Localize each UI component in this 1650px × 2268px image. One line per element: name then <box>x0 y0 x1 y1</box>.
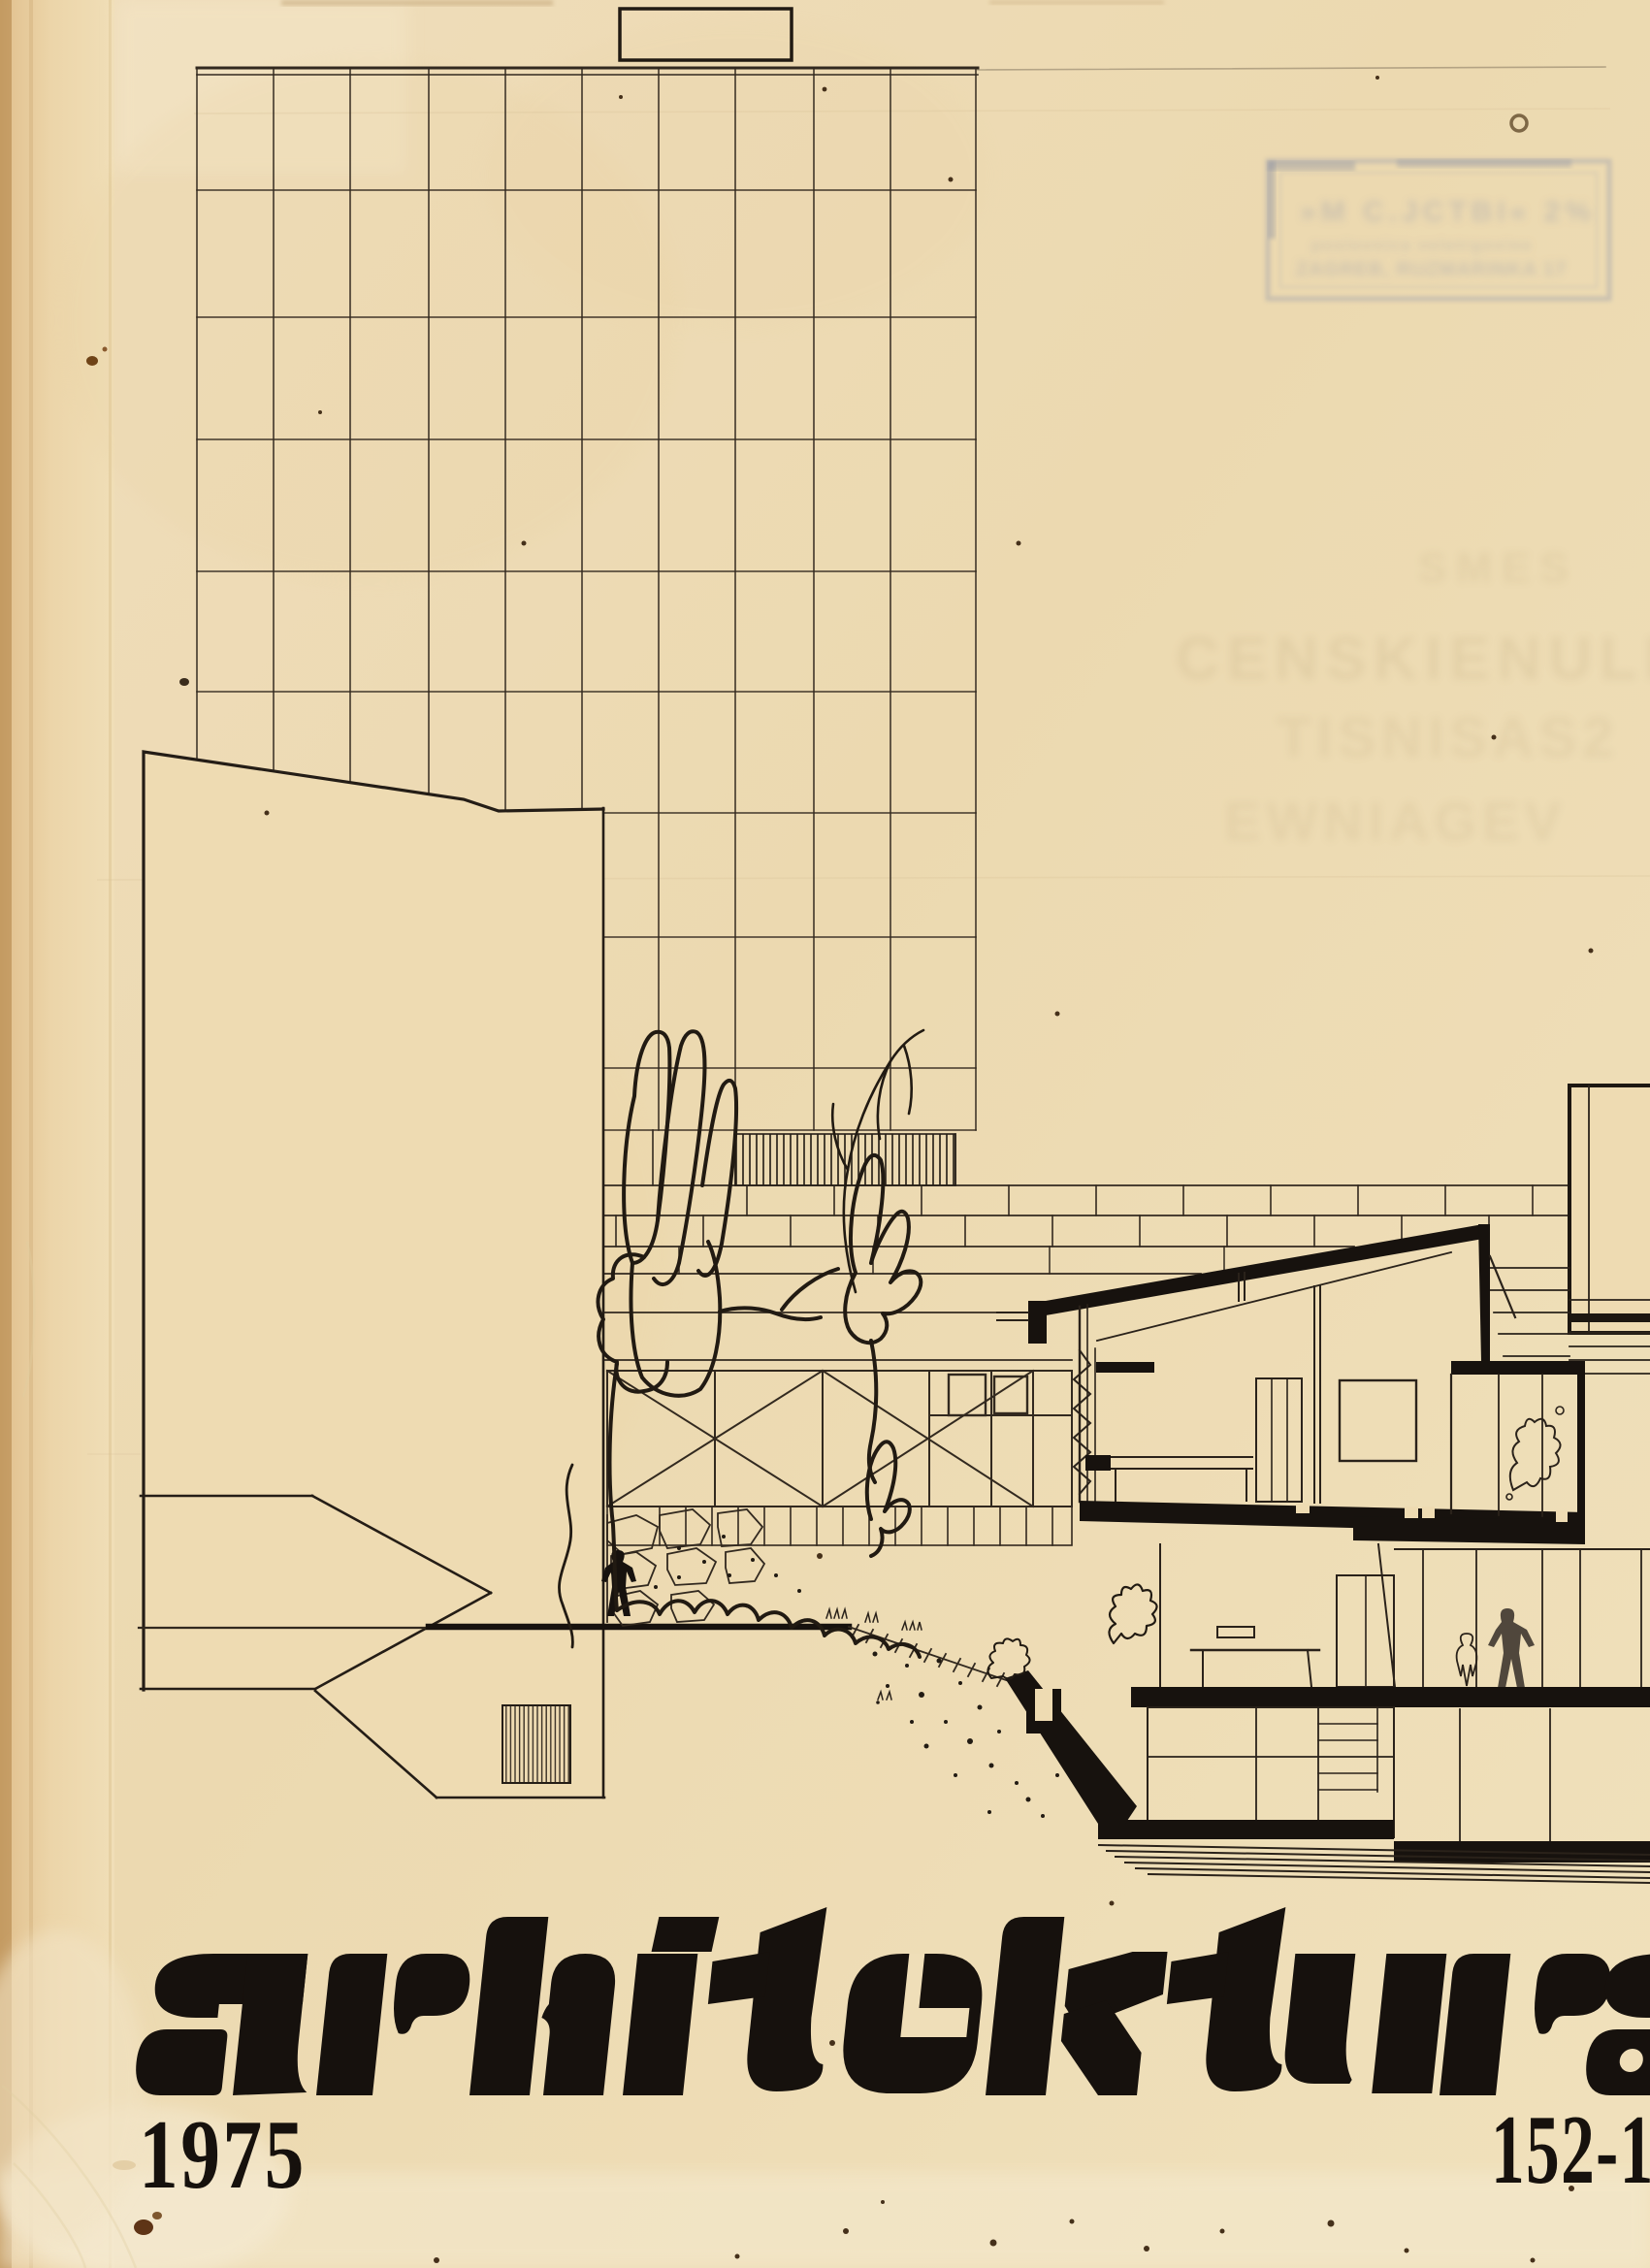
svg-text:CENSKIENULER: CENSKIENULER <box>1176 626 1650 693</box>
svg-text:TISNISAS2: TISNISAS2 <box>1277 706 1620 769</box>
svg-text:SMES: SMES <box>1418 544 1578 592</box>
svg-text:poslovnica veletrgovine: poslovnica veletrgovine <box>1311 238 1533 254</box>
svg-text:»M C.JCTBI« 2%: »M C.JCTBI« 2% <box>1300 196 1596 228</box>
svg-text:EWNIAGEV: EWNIAGEV <box>1224 791 1567 852</box>
svg-text:1975: 1975 <box>139 2099 307 2209</box>
svg-text:ZAGREB, RUZMARINKA 17: ZAGREB, RUZMARINKA 17 <box>1296 259 1567 280</box>
